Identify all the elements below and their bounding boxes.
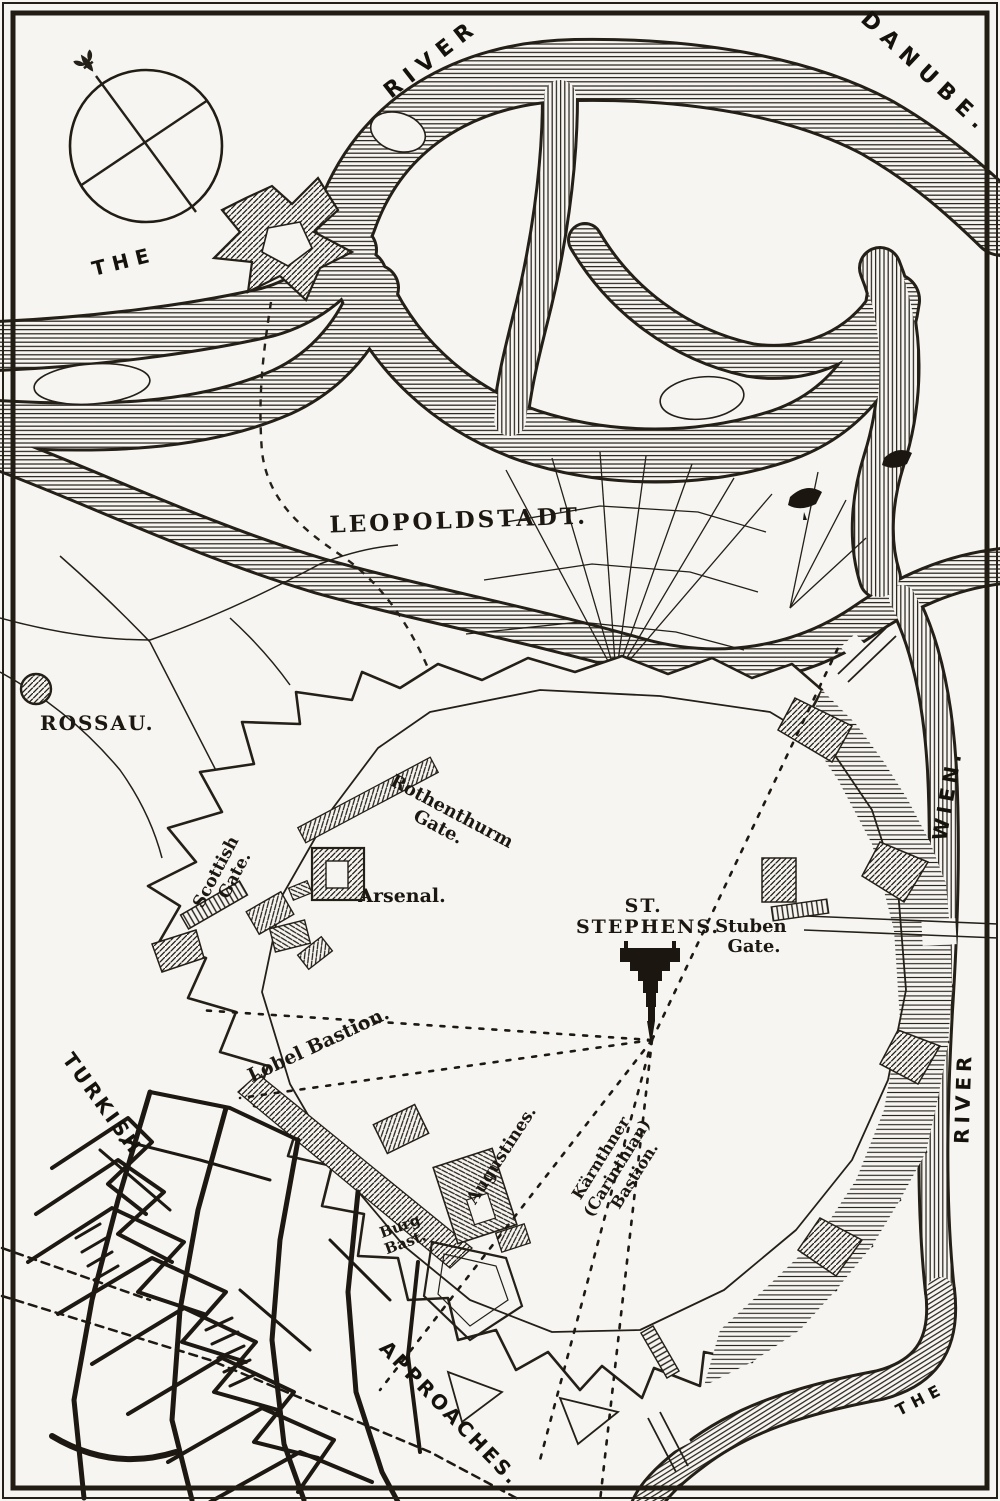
label-arsenal: Arsenal. [357,885,446,907]
rossau-dot-icon [21,674,51,704]
vienna-siege-map: THE RIVER DANUBE. LEOPOLDSTADT. ROSSAU. … [0,0,1000,1501]
label-rossau: ROSSAU. [40,711,155,735]
label-river-right: RIVER [949,1051,976,1144]
engraved-map-page: THE RIVER DANUBE. LEOPOLDSTADT. ROSSAU. … [0,0,1000,1501]
